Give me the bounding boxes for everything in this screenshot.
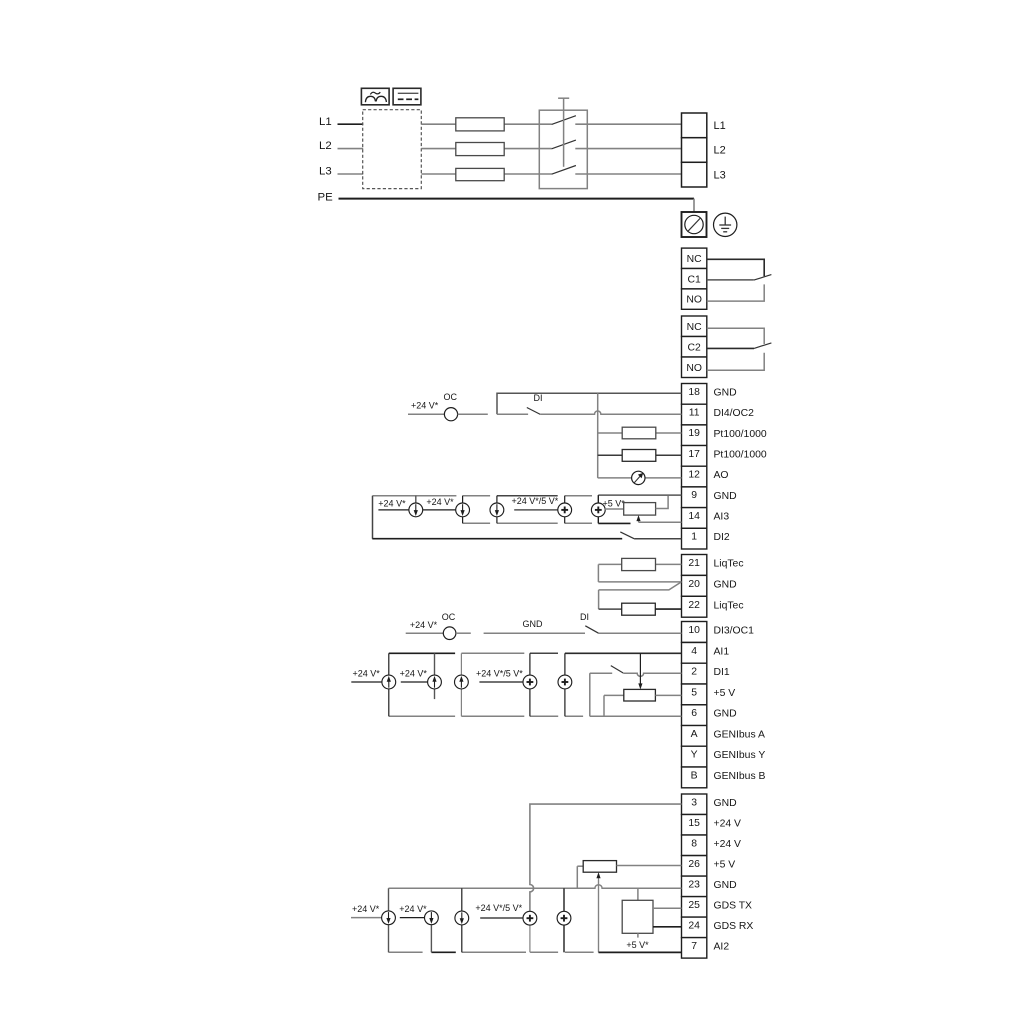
svg-text:5: 5: [691, 687, 697, 698]
svg-text:14: 14: [688, 511, 700, 522]
svg-text:+24 V*: +24 V*: [353, 669, 381, 679]
svg-text:GDS TX: GDS TX: [714, 901, 753, 912]
svg-text:+24 V: +24 V: [714, 818, 742, 829]
svg-text:1: 1: [691, 532, 697, 543]
svg-text:+5 V: +5 V: [714, 688, 736, 699]
svg-text:22: 22: [688, 600, 700, 611]
svg-text:15: 15: [688, 818, 700, 829]
svg-text:A: A: [691, 729, 698, 740]
svg-text:2: 2: [691, 667, 697, 678]
svg-text:AI3: AI3: [714, 512, 730, 523]
svg-text:24: 24: [688, 920, 700, 931]
svg-text:9: 9: [691, 490, 697, 501]
svg-text:8: 8: [691, 838, 697, 849]
svg-text:21: 21: [688, 558, 700, 569]
svg-text:Y: Y: [691, 750, 698, 761]
svg-text:Pt100/1000: Pt100/1000: [714, 429, 767, 440]
svg-text:GND: GND: [714, 387, 737, 398]
svg-text:L3: L3: [319, 166, 332, 178]
svg-text:GENIbus B: GENIbus B: [714, 771, 766, 782]
svg-text:Pt100/1000: Pt100/1000: [714, 450, 767, 461]
svg-text:NC: NC: [687, 322, 703, 333]
svg-text:+24 V*/5 V*: +24 V*/5 V*: [475, 903, 522, 913]
svg-text:DI3/OC1: DI3/OC1: [714, 626, 755, 637]
svg-text:GENIbus A: GENIbus A: [714, 730, 765, 741]
svg-text:4: 4: [691, 646, 697, 657]
svg-text:GND: GND: [714, 491, 737, 502]
svg-text:25: 25: [688, 900, 700, 911]
svg-text:GND: GND: [714, 798, 737, 809]
svg-text:11: 11: [689, 408, 700, 419]
svg-text:+24 V*: +24 V*: [399, 904, 427, 914]
svg-text:18: 18: [688, 387, 700, 398]
svg-text:+24 V*: +24 V*: [410, 620, 438, 630]
svg-text:L2: L2: [714, 145, 726, 157]
svg-text:+24 V: +24 V: [714, 839, 742, 850]
svg-text:DI2: DI2: [714, 532, 730, 543]
svg-text:+24 V*: +24 V*: [352, 904, 380, 914]
svg-text:+24 V*: +24 V*: [400, 669, 428, 679]
svg-text:DI: DI: [580, 612, 589, 622]
svg-text:LiqTec: LiqTec: [714, 559, 744, 570]
svg-text:+5 V*: +5 V*: [626, 940, 649, 950]
svg-text:DI1: DI1: [714, 667, 730, 678]
svg-text:+24 V*: +24 V*: [378, 499, 406, 509]
svg-text:GENIbus Y: GENIbus Y: [714, 750, 766, 761]
svg-text:12: 12: [688, 470, 700, 481]
svg-text:GND: GND: [714, 880, 737, 891]
svg-text:LiqTec: LiqTec: [714, 600, 744, 611]
svg-text:OC: OC: [442, 612, 456, 622]
svg-text:NO: NO: [686, 363, 702, 374]
svg-text:C2: C2: [688, 342, 702, 353]
svg-text:B: B: [691, 770, 698, 781]
svg-text:NC: NC: [687, 254, 703, 265]
svg-text:26: 26: [688, 859, 700, 870]
svg-text:19: 19: [688, 428, 700, 439]
svg-text:7: 7: [691, 941, 697, 952]
svg-text:+24 V*: +24 V*: [411, 401, 439, 411]
svg-text:+5 V*: +5 V*: [603, 498, 626, 508]
svg-text:PE: PE: [318, 191, 334, 203]
svg-text:GDS RX: GDS RX: [714, 921, 754, 932]
svg-text:AI1: AI1: [714, 647, 730, 658]
svg-text:GND: GND: [714, 580, 737, 591]
svg-text:+24 V*: +24 V*: [426, 497, 454, 507]
svg-text:+24 V*/5 V*: +24 V*/5 V*: [476, 669, 523, 679]
svg-text:AO: AO: [714, 470, 729, 481]
svg-text:GND: GND: [714, 709, 737, 720]
svg-text:23: 23: [688, 879, 700, 890]
svg-text:AI2: AI2: [714, 942, 730, 953]
svg-text:NO: NO: [686, 295, 702, 306]
svg-text:L1: L1: [319, 116, 332, 128]
svg-text:+24 V*/5 V*: +24 V*/5 V*: [512, 496, 559, 506]
svg-text:DI4/OC2: DI4/OC2: [714, 408, 755, 419]
svg-text:DI: DI: [534, 393, 543, 403]
svg-text:6: 6: [691, 708, 697, 719]
svg-text:17: 17: [688, 449, 700, 460]
svg-text:L2: L2: [319, 140, 332, 152]
svg-text:10: 10: [688, 625, 700, 636]
svg-text:+5 V: +5 V: [714, 859, 736, 870]
svg-text:20: 20: [688, 579, 700, 590]
svg-text:L1: L1: [714, 120, 726, 132]
svg-text:L3: L3: [714, 169, 726, 181]
svg-text:3: 3: [691, 797, 697, 808]
svg-text:GND: GND: [523, 619, 544, 629]
svg-text:OC: OC: [444, 392, 458, 402]
svg-text:C1: C1: [688, 274, 702, 285]
